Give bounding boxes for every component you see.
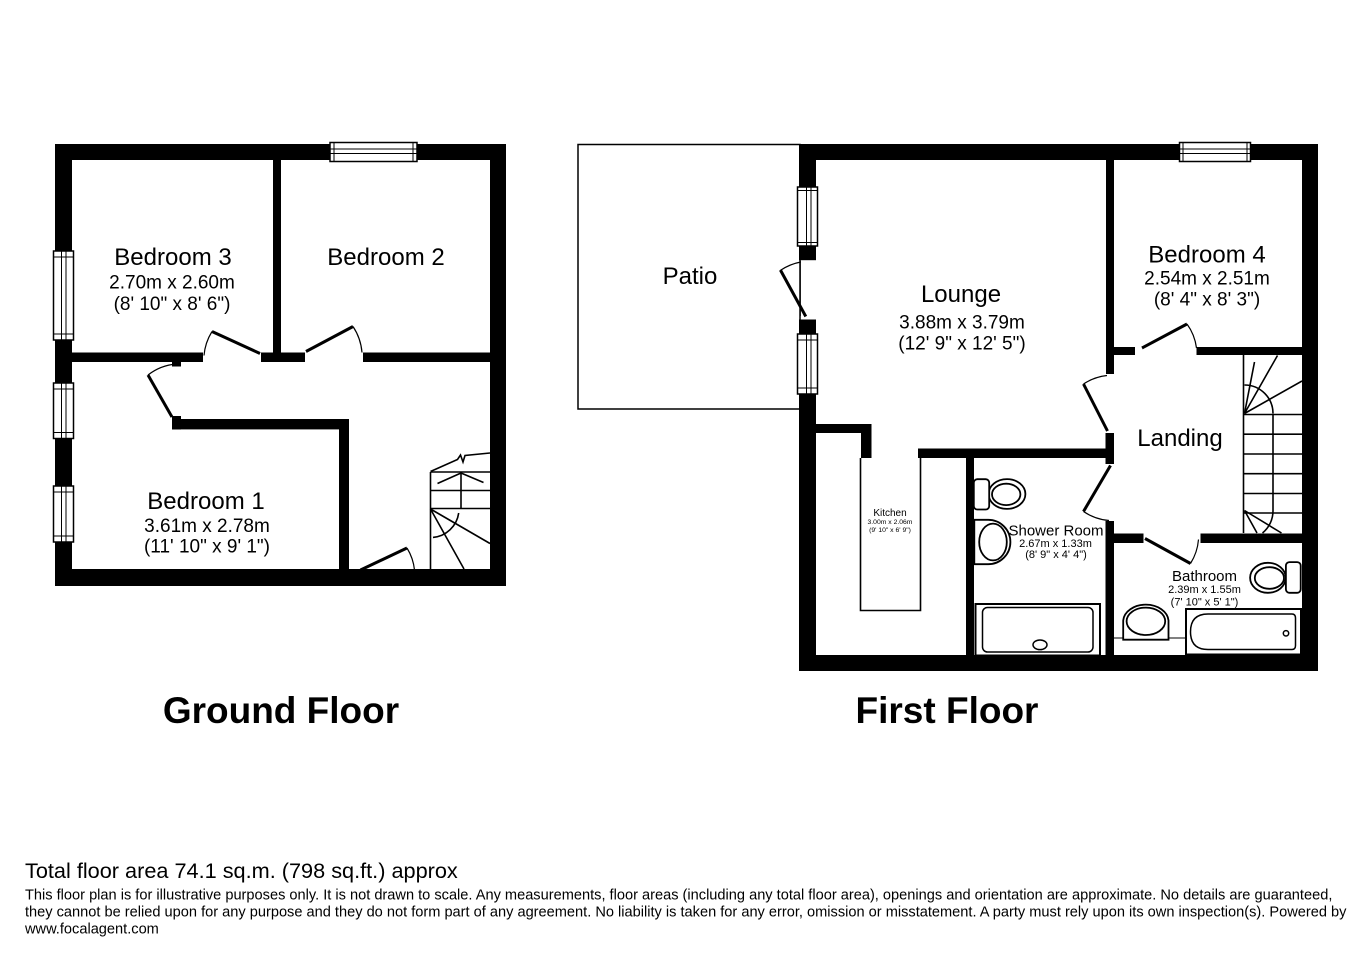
svg-text:Landing: Landing — [1137, 425, 1222, 452]
svg-text:(8' 4" x 8' 3"): (8' 4" x 8' 3") — [1154, 290, 1260, 311]
svg-text:www.focalagent.com: www.focalagent.com — [24, 922, 159, 938]
svg-text:(8' 9" x 4' 4"): (8' 9" x 4' 4") — [1025, 549, 1087, 561]
svg-text:2.54m x 2.51m: 2.54m x 2.51m — [1144, 268, 1270, 289]
svg-text:First Floor: First Floor — [856, 690, 1039, 731]
svg-text:Bedroom 2: Bedroom 2 — [327, 244, 444, 271]
svg-text:(7' 10" x 5' 1"): (7' 10" x 5' 1") — [1171, 596, 1239, 608]
svg-text:Shower Room: Shower Room — [1008, 523, 1103, 540]
svg-text:Bedroom 4: Bedroom 4 — [1148, 241, 1265, 268]
svg-text:3.00m x 2.06m: 3.00m x 2.06m — [868, 519, 913, 526]
svg-text:2.39m x 1.55m: 2.39m x 1.55m — [1168, 584, 1241, 596]
svg-text:3.88m x 3.79m: 3.88m x 3.79m — [899, 312, 1025, 333]
svg-text:Bathroom: Bathroom — [1172, 568, 1237, 585]
svg-text:they cannot be relied upon for: they cannot be relied upon for any purpo… — [25, 905, 1347, 921]
svg-text:2.70m x 2.60m: 2.70m x 2.60m — [109, 273, 235, 294]
svg-text:This floor plan is for illustr: This floor plan is for illustrative purp… — [25, 888, 1332, 904]
svg-text:Lounge: Lounge — [921, 281, 1001, 308]
svg-text:Ground Floor: Ground Floor — [163, 690, 399, 731]
svg-text:Kitchen: Kitchen — [873, 508, 906, 519]
svg-text:Bedroom 3: Bedroom 3 — [114, 244, 231, 271]
svg-text:(8' 10" x 8' 6"): (8' 10" x 8' 6") — [114, 294, 231, 315]
svg-text:(9' 10" x 6' 9"): (9' 10" x 6' 9") — [869, 527, 911, 534]
svg-text:Bedroom 1: Bedroom 1 — [147, 488, 264, 515]
svg-text:(11' 10" x 9' 1"): (11' 10" x 9' 1") — [144, 537, 270, 558]
svg-text:(12' 9" x 12' 5"): (12' 9" x 12' 5") — [898, 334, 1025, 355]
svg-text:Patio: Patio — [663, 263, 718, 290]
svg-text:3.61m x 2.78m: 3.61m x 2.78m — [144, 516, 270, 537]
svg-text:Total floor area 74.1 sq.m. (7: Total floor area 74.1 sq.m. (798 sq.ft.)… — [25, 858, 458, 883]
